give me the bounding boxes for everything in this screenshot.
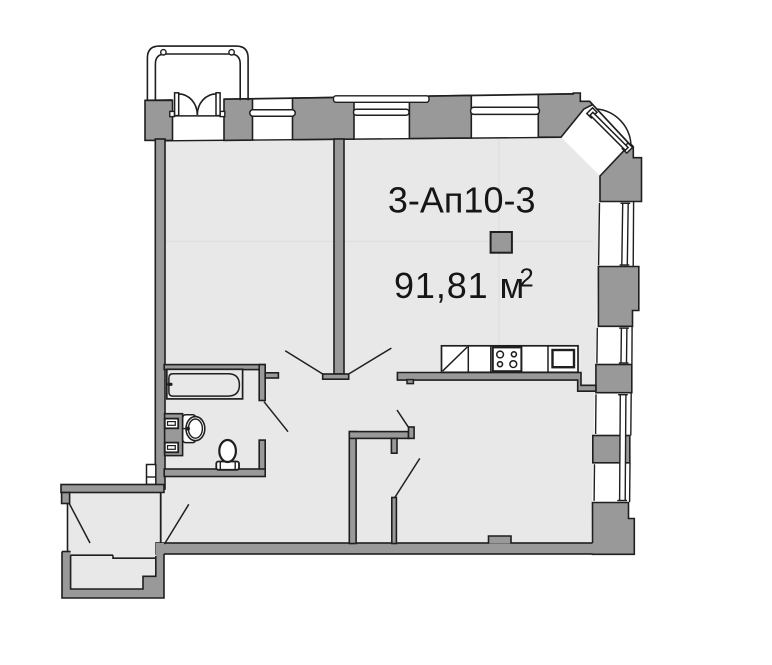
svg-text:91,81 м: 91,81 м <box>394 265 525 306</box>
svg-text:2: 2 <box>520 265 534 293</box>
svg-text:3-Ап10-3: 3-Ап10-3 <box>388 180 536 221</box>
